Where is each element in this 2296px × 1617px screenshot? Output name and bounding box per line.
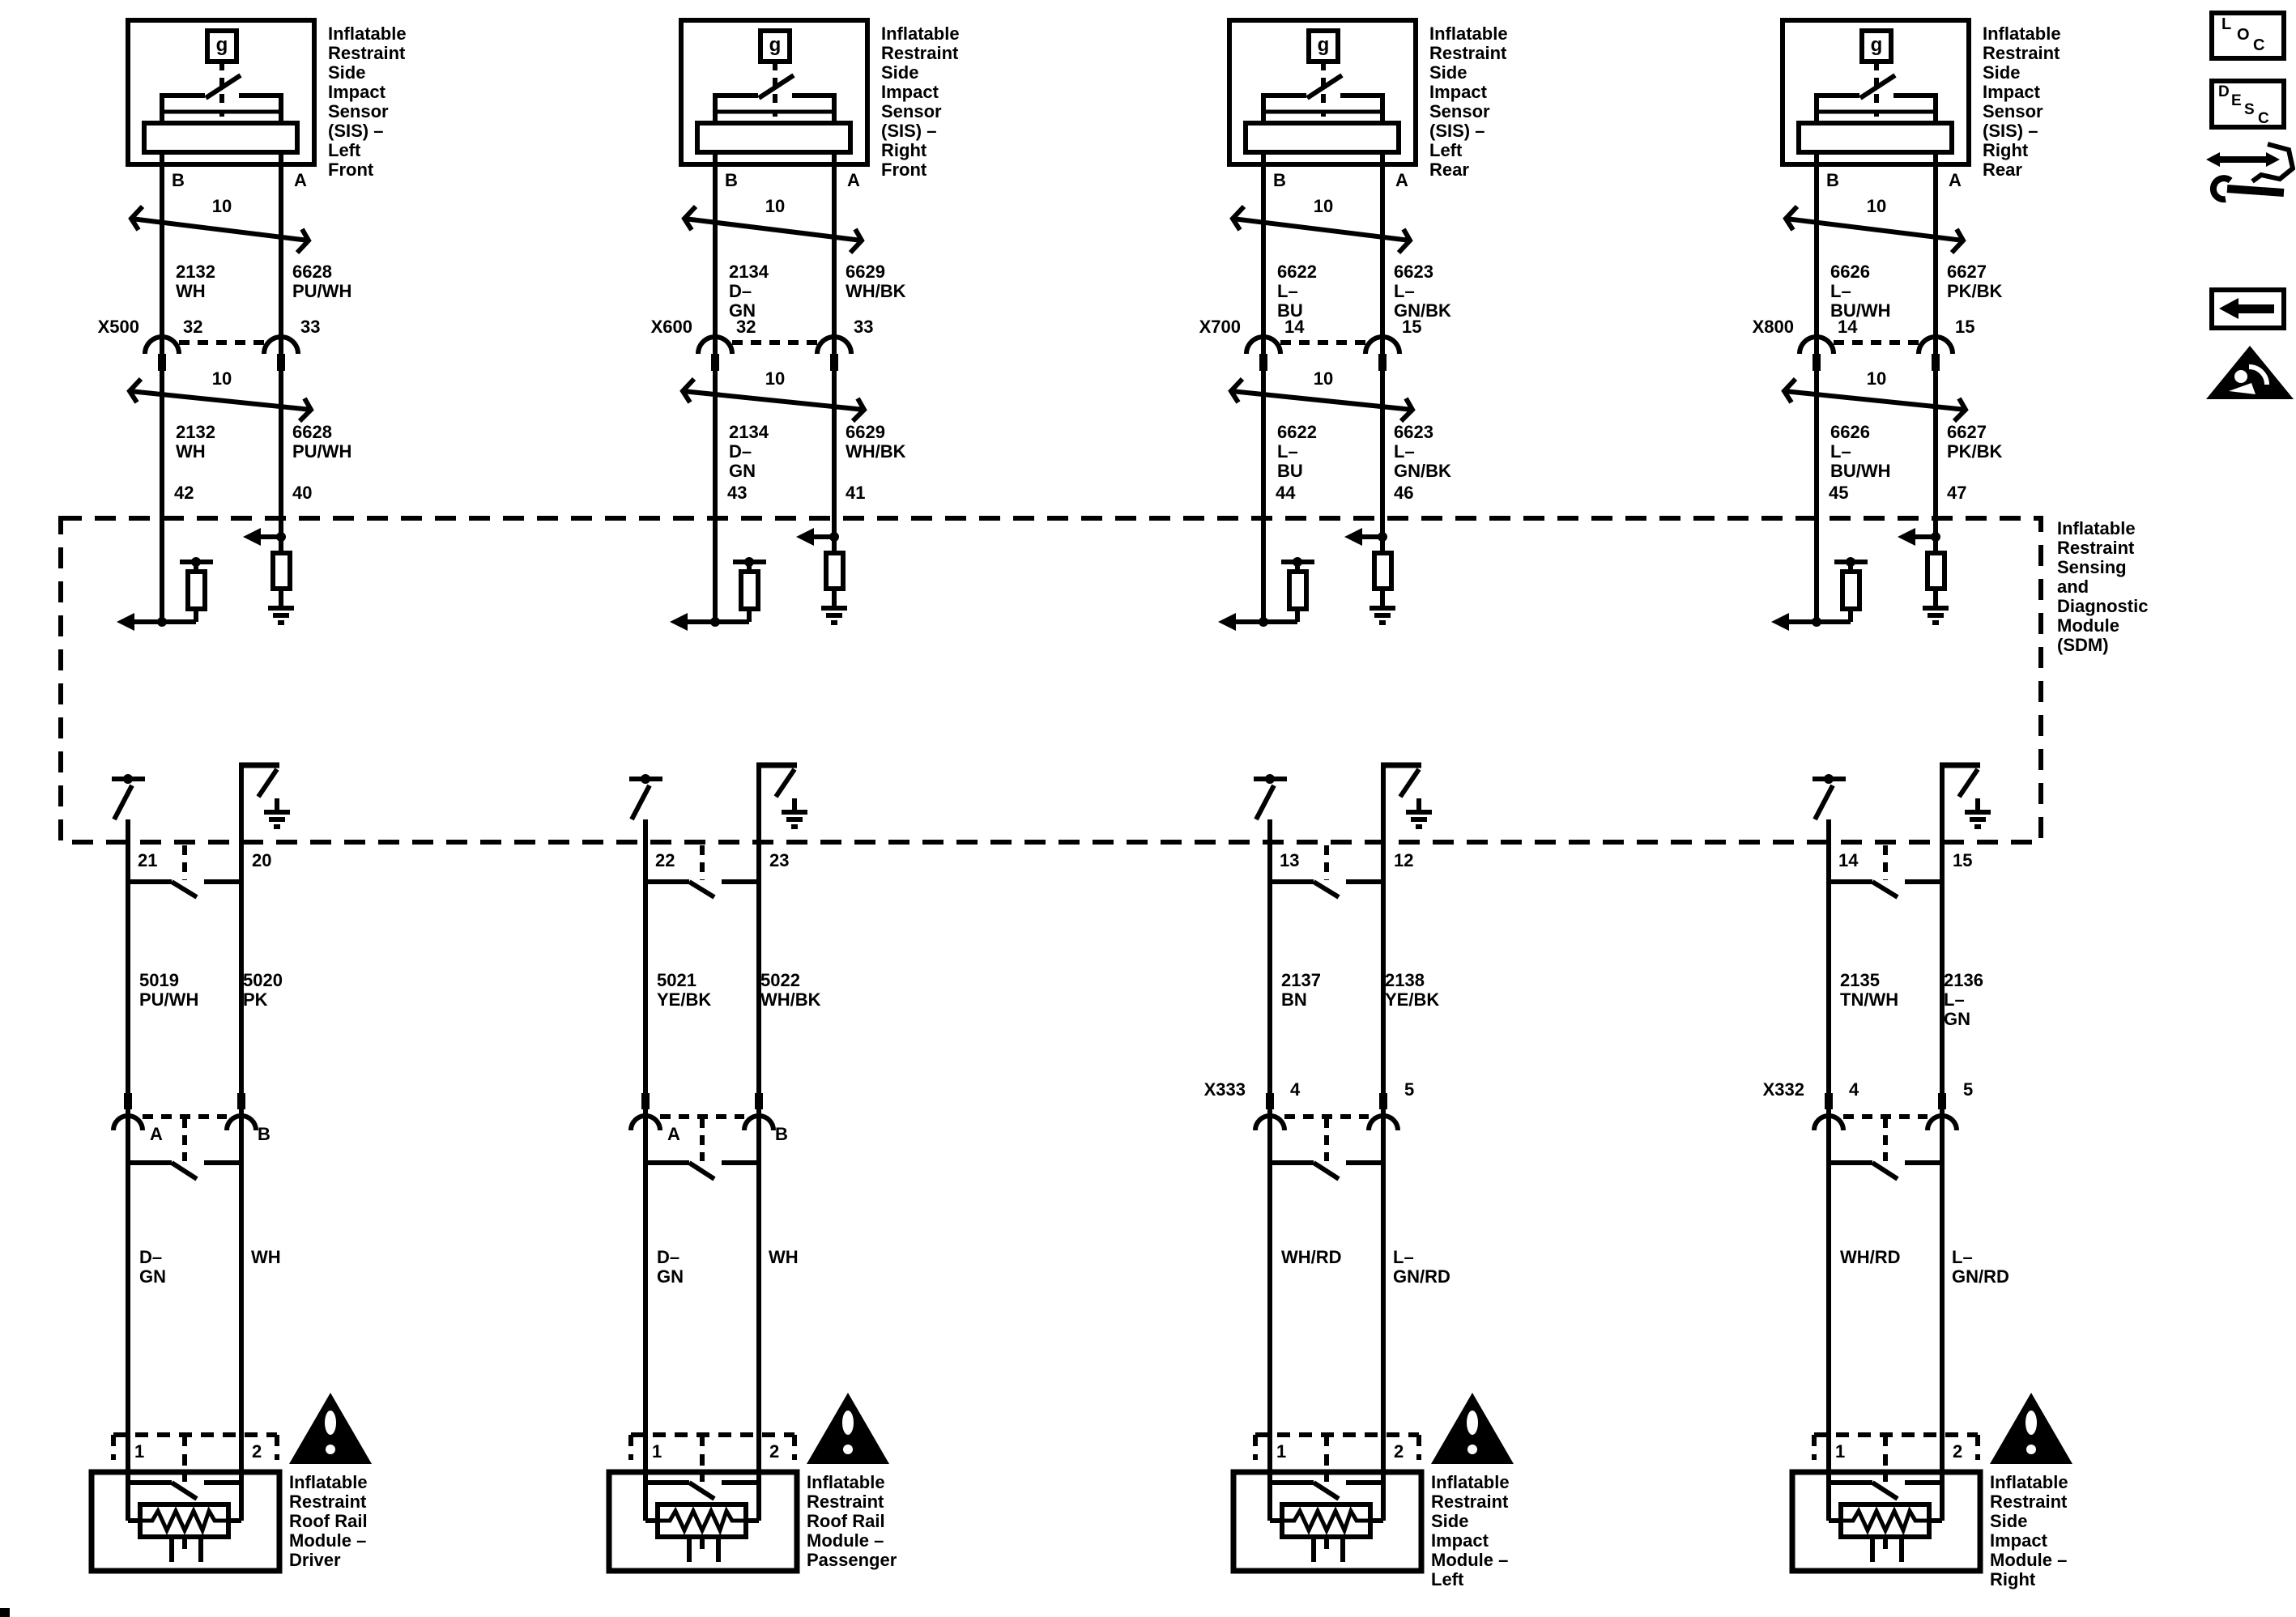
twist-count-label: 10 — [1841, 369, 1912, 389]
sdm-pin-label: 42 — [174, 483, 194, 503]
sensor-pin-label: A — [294, 171, 307, 190]
twist-count-label: 10 — [1288, 197, 1359, 216]
wire-label: 6622 L–BU — [1277, 262, 1317, 321]
sdm-pin-label: 22 — [655, 851, 675, 870]
sensor-pin-label: A — [1949, 171, 1962, 190]
connector-pin-label: 15 — [1402, 317, 1421, 337]
column-2-upper-art — [670, 20, 867, 631]
sdm-pin-label: 12 — [1394, 851, 1413, 870]
sensor-label: Inflatable Restraint Side Impact Sensor … — [1983, 24, 2120, 180]
twist-count-label: 10 — [1288, 369, 1359, 389]
connector-pin-label: B — [258, 1125, 270, 1144]
column-4-upper-art — [1771, 20, 1969, 631]
connector-pin-label: B — [775, 1125, 788, 1144]
twist-count-label: 10 — [739, 197, 811, 216]
sensor-pin-label: A — [1395, 171, 1408, 190]
module-pin-label: 2 — [769, 1442, 779, 1462]
airbag-triangle-icon — [2204, 344, 2295, 401]
wire-label: 5021 YE/BK — [657, 971, 711, 1010]
harness-connector-label: X800 — [1671, 317, 1794, 337]
connector-pin-label: 32 — [736, 317, 756, 337]
module-pin-label: 1 — [1835, 1442, 1845, 1462]
sdm-pin-label: 15 — [1953, 851, 1972, 870]
loc-letter: L — [2221, 15, 2231, 34]
wire-label: 6626 L–BU/WH — [1830, 262, 1891, 321]
sdm-pin-label: 14 — [1838, 851, 1858, 870]
sdm-dashed-box — [61, 518, 2041, 842]
wire-color-label: WH/RD — [1840, 1248, 1901, 1267]
harness-connector-label: X700 — [1118, 317, 1241, 337]
wire-label: 5019 PU/WH — [139, 971, 198, 1010]
sdm-pin-label: 23 — [769, 851, 789, 870]
connector-pin-label: 14 — [1838, 317, 1857, 337]
wire-label: 2137 BN — [1281, 971, 1321, 1010]
wire-label: 6627 PK/BK — [1947, 423, 2002, 462]
sdm-pin-label: 40 — [292, 483, 312, 503]
module-pin-label: 2 — [252, 1442, 262, 1462]
sdm-label: Inflatable Restraint Sensing and Diagnos… — [2057, 519, 2199, 655]
wire-label: 6622 L–BU — [1277, 423, 1317, 481]
desc-button[interactable]: D E S C — [2209, 79, 2286, 130]
wire-label: 6626 L–BU/WH — [1830, 423, 1891, 481]
sensor-label: Inflatable Restraint Side Impact Sensor … — [881, 24, 1019, 180]
module-pin-label: 1 — [652, 1442, 662, 1462]
sensor-pin-label: B — [172, 171, 185, 190]
sdm-pin-label: 41 — [846, 483, 865, 503]
wire-color-label: WH — [251, 1248, 281, 1267]
column-1-lower-art — [92, 765, 372, 1571]
module-label: Inflatable Restraint Side Impact Module … — [1990, 1473, 2128, 1589]
wire-label: 2136 L–GN — [1944, 971, 1983, 1029]
sdm-pin-label: 47 — [1947, 483, 1966, 503]
module-pin-label: 1 — [1276, 1442, 1286, 1462]
connector-pin-label: 4 — [1849, 1080, 1859, 1100]
wire-color-label: D–GN — [657, 1248, 684, 1287]
g-sensor-icon: g — [1862, 36, 1891, 55]
sdm-pin-label: 20 — [252, 851, 271, 870]
wire-label: 2138 YE/BK — [1385, 971, 1439, 1010]
connector-pin-label: 32 — [183, 317, 202, 337]
sdm-pin-label: 21 — [138, 851, 157, 870]
twist-count-label: 10 — [186, 197, 258, 216]
wire-color-label: WH/RD — [1281, 1248, 1342, 1267]
wire-label: 2134 D–GN — [729, 423, 769, 481]
loc-letter: O — [2237, 26, 2250, 45]
g-sensor-icon: g — [207, 36, 236, 55]
loc-button[interactable]: L O C — [2209, 11, 2286, 61]
connector-pin-label: 33 — [300, 317, 320, 337]
desc-letter: S — [2244, 101, 2255, 119]
connector-pin-label: 15 — [1955, 317, 1974, 337]
module-pin-label: 1 — [134, 1442, 144, 1462]
page-corner-mark — [0, 1608, 10, 1617]
wire-color-label: L–GN/RD — [1952, 1248, 2009, 1287]
twist-count-label: 10 — [186, 369, 258, 389]
connector-pin-label: 4 — [1290, 1080, 1300, 1100]
wire-label: 2132 WH — [176, 262, 215, 301]
module-pin-label: 2 — [1953, 1442, 1962, 1462]
sensor-pin-label: B — [1826, 171, 1839, 190]
wire-label: 2132 WH — [176, 423, 215, 462]
connector-trace-icon[interactable] — [2204, 142, 2295, 206]
connector-pin-label: A — [150, 1125, 163, 1144]
sensor-pin-label: A — [847, 171, 860, 190]
wire-label: 6628 PU/WH — [292, 262, 351, 301]
back-button[interactable] — [2209, 287, 2286, 330]
module-pin-label: 2 — [1394, 1442, 1404, 1462]
twist-count-label: 10 — [739, 369, 811, 389]
wire-label: 6623 L–GN/BK — [1394, 423, 1451, 481]
wire-label: 5020 PK — [243, 971, 283, 1010]
desc-letter: C — [2258, 110, 2269, 128]
column-3-lower-art — [1233, 765, 1514, 1571]
module-label: Inflatable Restraint Roof Rail Module – … — [289, 1473, 427, 1570]
desc-letter: D — [2218, 83, 2230, 101]
wiring-diagram-page: Inflatable Restraint Side Impact Sensor … — [0, 0, 2296, 1617]
wire-label: 6629 WH/BK — [846, 262, 906, 301]
connector-pin-label: 5 — [1404, 1080, 1414, 1100]
connector-pin-label: A — [667, 1125, 680, 1144]
inline-connector-label: X333 — [1120, 1080, 1246, 1100]
desc-letter: E — [2231, 92, 2242, 110]
harness-connector-label: X500 — [16, 317, 139, 337]
loc-letter: C — [2253, 36, 2264, 55]
sdm-pin-label: 13 — [1280, 851, 1299, 870]
twist-count-label: 10 — [1841, 197, 1912, 216]
wire-label: 6629 WH/BK — [846, 423, 906, 462]
module-label: Inflatable Restraint Side Impact Module … — [1431, 1473, 1569, 1589]
connector-pin-label: 33 — [854, 317, 873, 337]
sdm-pin-label: 44 — [1276, 483, 1295, 503]
sdm-pin-label: 46 — [1394, 483, 1413, 503]
g-sensor-icon: g — [1309, 36, 1338, 55]
sensor-label: Inflatable Restraint Side Impact Sensor … — [328, 24, 466, 180]
sdm-pin-label: 45 — [1829, 483, 1848, 503]
sensor-label: Inflatable Restraint Side Impact Sensor … — [1429, 24, 1567, 180]
sir-warning-icon[interactable] — [2204, 344, 2295, 401]
column-3-upper-art — [1218, 20, 1416, 631]
column-4-lower-art — [1792, 765, 2072, 1571]
wire-color-label: D–GN — [139, 1248, 166, 1287]
wire-label: 5022 WH/BK — [760, 971, 821, 1010]
wire-label: 6628 PU/WH — [292, 423, 351, 462]
wire-label: 2134 D–GN — [729, 262, 769, 321]
left-arrow-icon — [2214, 292, 2281, 326]
connector-pin-label: 14 — [1284, 317, 1304, 337]
inline-connector-label: X332 — [1679, 1080, 1804, 1100]
wire-color-label: WH — [769, 1248, 799, 1267]
arrows-wrench-icon — [2204, 142, 2295, 206]
wire-label: 6627 PK/BK — [1947, 262, 2002, 301]
column-1-upper-art — [117, 20, 314, 631]
wiring-diagram-art — [0, 0, 2296, 1617]
sdm-pin-label: 43 — [727, 483, 747, 503]
wire-label: 6623 L–GN/BK — [1394, 262, 1451, 321]
sensor-pin-label: B — [1273, 171, 1286, 190]
g-sensor-icon: g — [760, 36, 790, 55]
module-label: Inflatable Restraint Roof Rail Module – … — [807, 1473, 944, 1570]
connector-pin-label: 5 — [1963, 1080, 1973, 1100]
wire-label: 2135 TN/WH — [1840, 971, 1898, 1010]
wire-color-label: L–GN/RD — [1393, 1248, 1450, 1287]
sensor-pin-label: B — [725, 171, 738, 190]
column-2-lower-art — [609, 765, 889, 1571]
harness-connector-label: X600 — [569, 317, 692, 337]
